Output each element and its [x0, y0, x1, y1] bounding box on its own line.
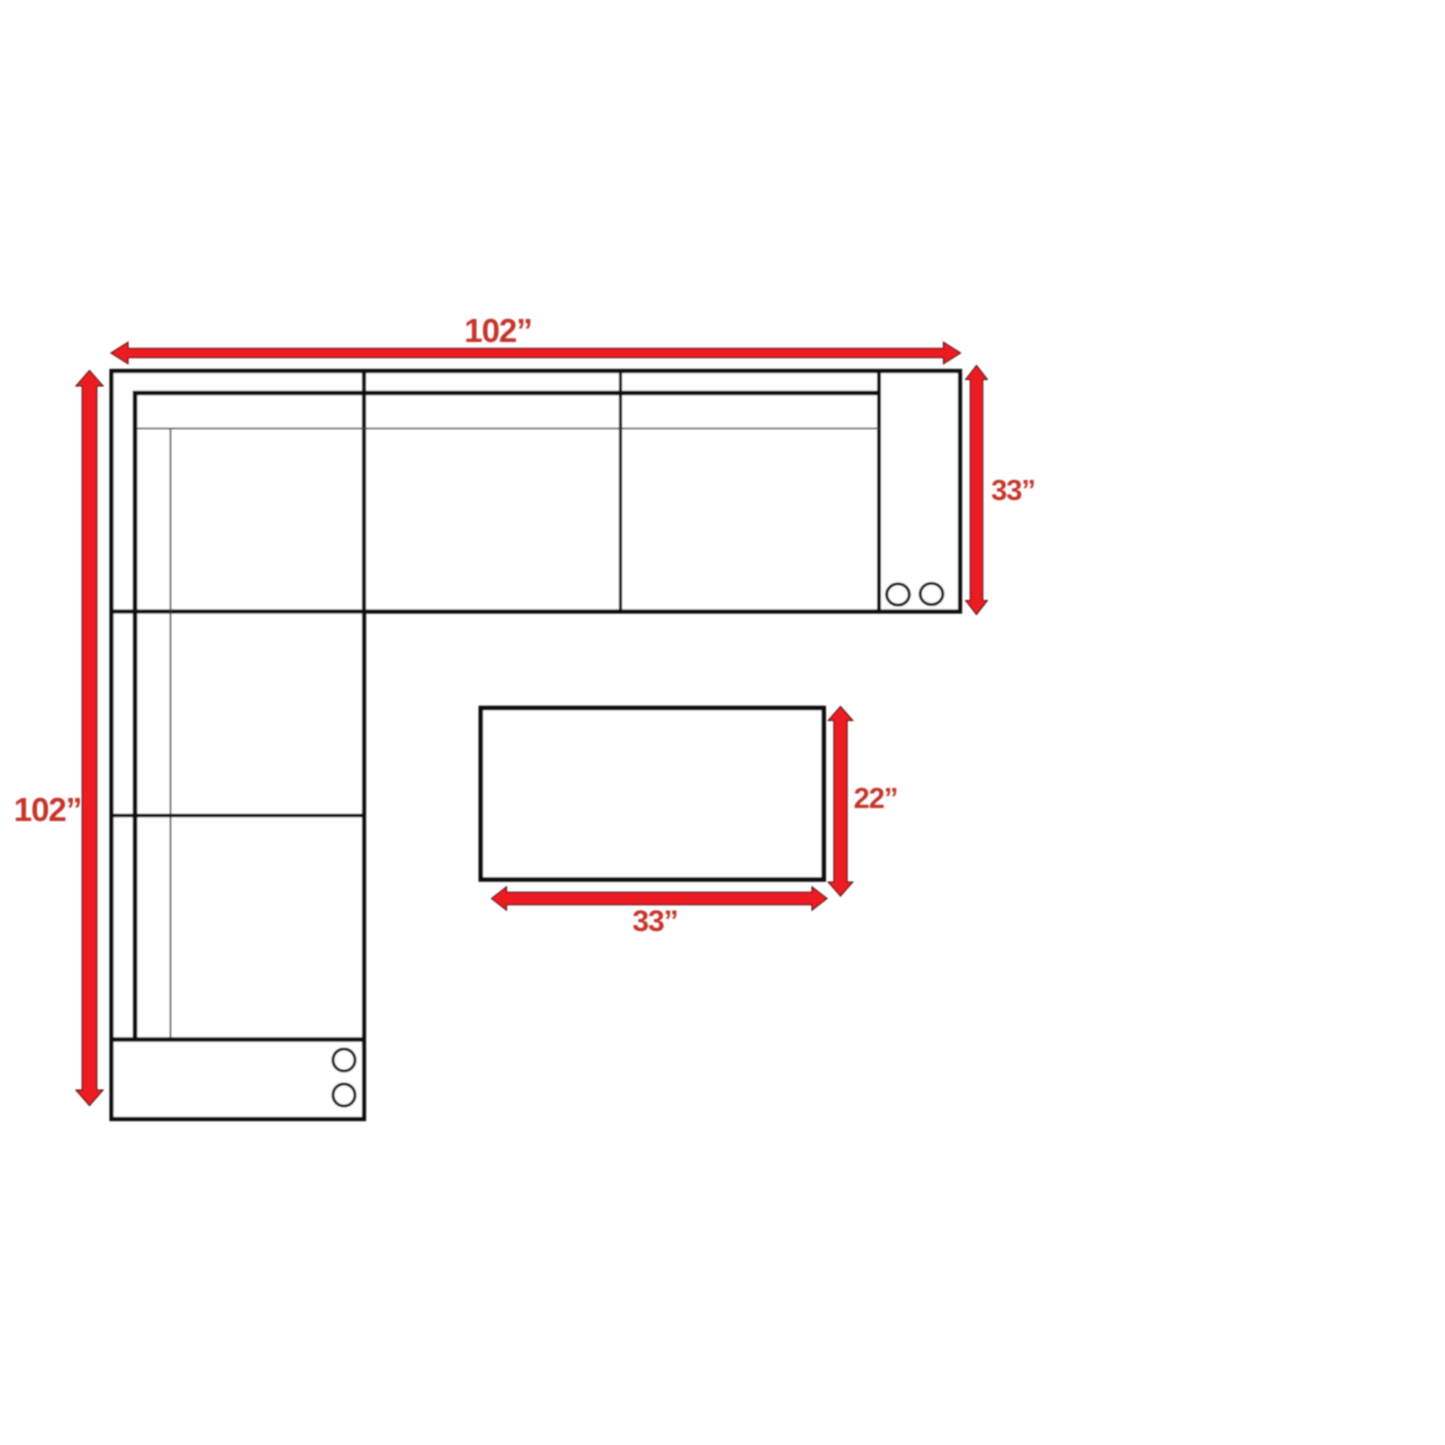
- svg-text:33”: 33”: [632, 905, 677, 938]
- svg-text:102”: 102”: [14, 791, 82, 828]
- svg-text:22”: 22”: [854, 783, 898, 815]
- svg-text:33”: 33”: [991, 475, 1035, 507]
- svg-text:102”: 102”: [464, 312, 532, 349]
